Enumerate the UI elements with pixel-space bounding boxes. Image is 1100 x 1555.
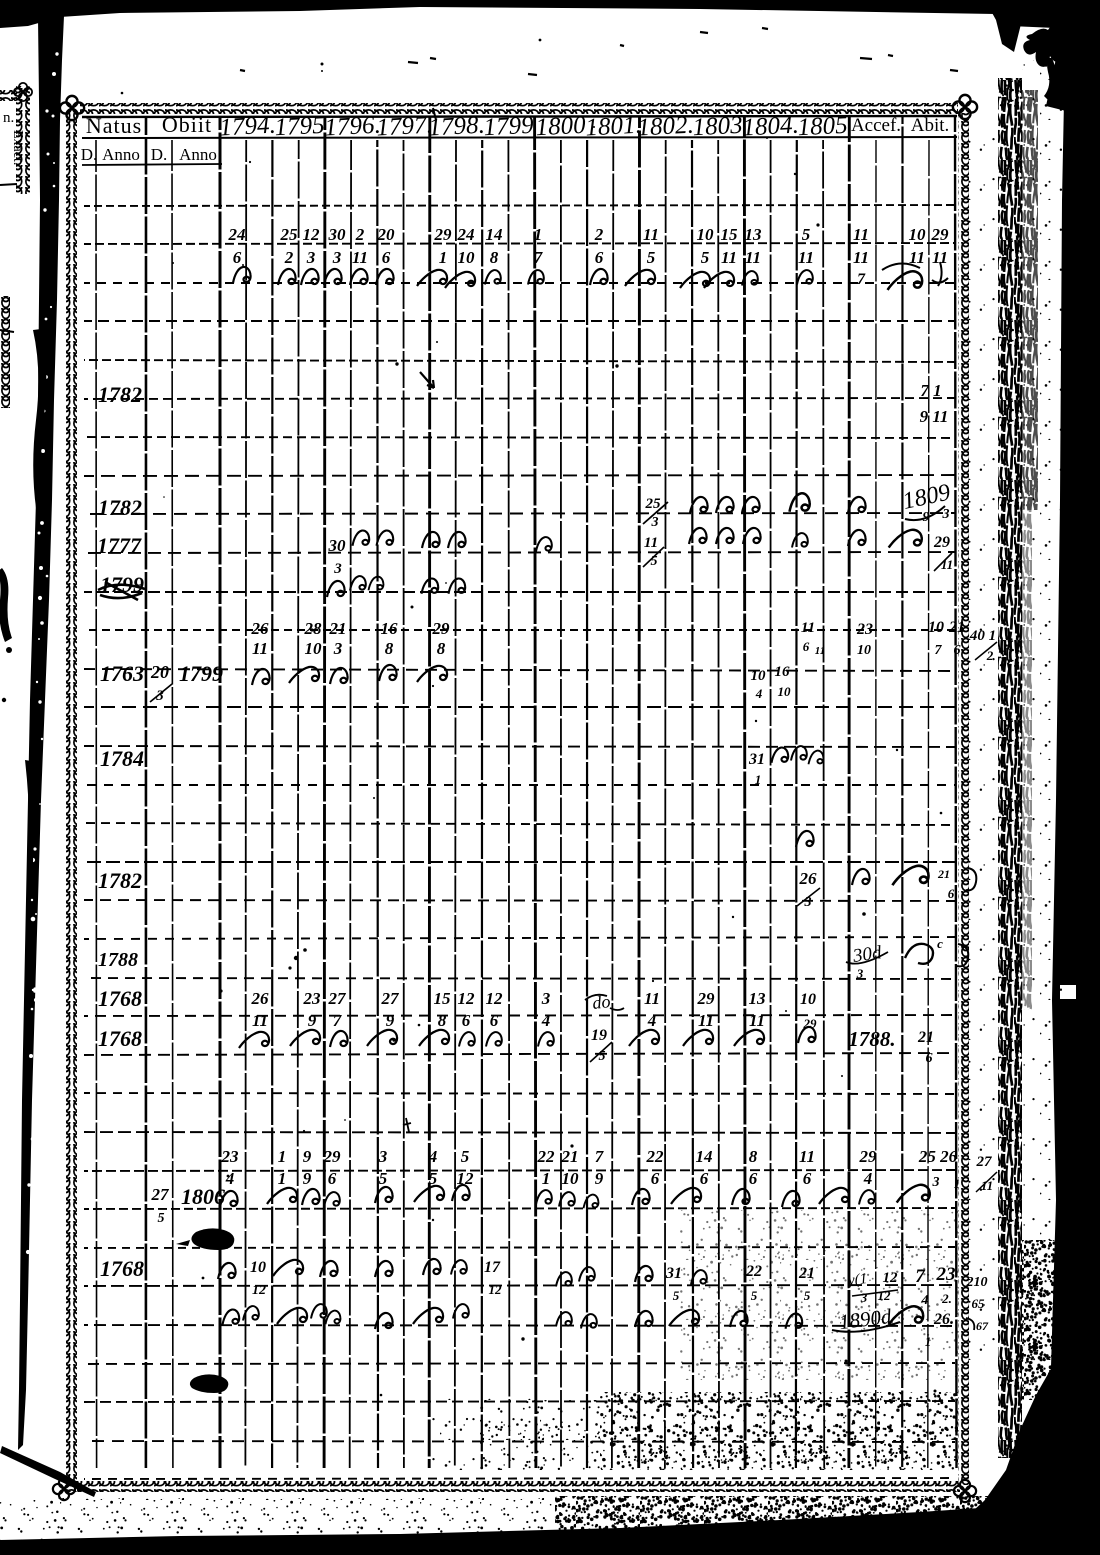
svg-text:1796.: 1796.: [324, 112, 382, 142]
svg-text:4: 4: [225, 1169, 235, 1188]
svg-text:16: 16: [381, 619, 399, 638]
svg-text:12: 12: [458, 989, 476, 1008]
svg-text:3: 3: [932, 1175, 940, 1190]
svg-text:10: 10: [909, 225, 927, 244]
svg-text:Accef.: Accef.: [851, 115, 901, 136]
svg-text:1784: 1784: [100, 746, 144, 771]
svg-text:26: 26: [251, 989, 270, 1008]
svg-text:26: 26: [799, 869, 818, 888]
svg-text:30: 30: [328, 225, 347, 244]
svg-text:1797.: 1797.: [376, 112, 434, 142]
svg-text:D.: D.: [81, 145, 98, 164]
svg-text:11: 11: [853, 248, 869, 267]
svg-text:7 1: 7 1: [920, 381, 941, 400]
svg-text:30: 30: [328, 536, 347, 555]
svg-text:22: 22: [646, 1147, 665, 1166]
svg-text:5: 5: [647, 248, 656, 267]
svg-text:11: 11: [815, 645, 825, 657]
svg-text:29: 29: [933, 534, 950, 551]
svg-text:6: 6: [700, 1169, 709, 1188]
svg-text:6: 6: [490, 1011, 499, 1030]
svg-text:10: 10: [697, 225, 715, 244]
svg-text:9: 9: [923, 510, 930, 525]
svg-text:6: 6: [803, 1169, 812, 1188]
svg-text:12: 12: [489, 1282, 503, 1297]
svg-text:11: 11: [798, 248, 814, 267]
svg-text:8: 8: [490, 248, 499, 267]
svg-text:11: 11: [643, 225, 659, 244]
svg-text:4: 4: [647, 1011, 657, 1030]
svg-text:1: 1: [278, 1147, 287, 1166]
svg-text:29: 29: [697, 989, 716, 1008]
svg-text:1: 1: [278, 1169, 287, 1188]
svg-text:9: 9: [386, 1011, 395, 1030]
svg-text:31: 31: [665, 1265, 682, 1282]
svg-text:23: 23: [303, 989, 322, 1008]
svg-text:11: 11: [853, 225, 869, 244]
svg-text:10: 10: [778, 684, 792, 699]
svg-text:3: 3: [804, 895, 812, 910]
svg-text:8: 8: [385, 639, 394, 658]
svg-text:11: 11: [749, 1011, 765, 1030]
svg-text:29: 29: [432, 619, 451, 638]
svg-text:11: 11: [745, 248, 761, 267]
svg-text:26: 26: [251, 619, 270, 638]
svg-text:1763: 1763: [100, 661, 144, 686]
svg-text:1800: 1800: [535, 112, 587, 142]
svg-text:5: 5: [379, 1169, 388, 1188]
svg-text:25: 25: [645, 496, 662, 512]
svg-text:28: 28: [304, 619, 323, 638]
svg-text:1: 1: [954, 1176, 961, 1191]
svg-text:Exact.: Exact.: [10, 130, 25, 165]
svg-text:21: 21: [937, 867, 950, 881]
svg-text:6: 6: [233, 248, 242, 267]
svg-text:9 11: 9 11: [920, 407, 949, 426]
svg-text:22: 22: [537, 1147, 556, 1166]
svg-text:Obiit: Obiit: [162, 112, 212, 137]
svg-text:5: 5: [673, 1288, 680, 1303]
svg-text:8: 8: [437, 639, 446, 658]
svg-text:31: 31: [748, 751, 765, 768]
svg-text:8: 8: [749, 1147, 758, 1166]
svg-text:1804.: 1804.: [742, 112, 800, 142]
svg-text:1799: 1799: [100, 572, 144, 597]
svg-text:Anno: Anno: [102, 145, 140, 164]
svg-text:9: 9: [595, 1169, 604, 1188]
svg-text:20: 20: [150, 662, 169, 682]
svg-text:14: 14: [486, 225, 503, 244]
svg-text:6: 6: [948, 886, 955, 901]
svg-text:1: 1: [755, 772, 762, 787]
svg-text:10: 10: [800, 991, 816, 1008]
svg-text:24: 24: [457, 225, 475, 244]
svg-text:3: 3: [378, 1147, 388, 1166]
svg-text:10: 10: [928, 619, 944, 636]
svg-text:1782: 1782: [98, 868, 142, 893]
svg-text:1: 1: [439, 248, 448, 267]
svg-text:12: 12: [252, 1283, 266, 1298]
svg-text:2: 2: [594, 225, 604, 244]
svg-text:4: 4: [863, 1169, 873, 1188]
svg-text:9: 9: [303, 1147, 312, 1166]
svg-text:5: 5: [461, 1147, 470, 1166]
svg-text:13: 13: [749, 989, 767, 1008]
svg-text:6: 6: [749, 1169, 758, 1188]
svg-text:6: 6: [462, 1011, 471, 1030]
svg-text:11: 11: [932, 248, 948, 267]
svg-text:1782: 1782: [98, 495, 142, 520]
svg-text:3: 3: [541, 989, 551, 1008]
svg-text:4: 4: [541, 1011, 551, 1030]
svg-text:5: 5: [599, 1049, 606, 1064]
svg-text:25 26: 25 26: [918, 1147, 958, 1166]
svg-text:23: 23: [221, 1147, 240, 1166]
svg-text:29: 29: [859, 1147, 878, 1166]
svg-text:23: 23: [856, 621, 873, 638]
svg-text:10: 10: [751, 668, 767, 684]
svg-text:7: 7: [857, 271, 866, 288]
svg-text:1788.: 1788.: [848, 1027, 895, 1051]
svg-text:1806: 1806: [181, 1184, 225, 1209]
svg-text:15: 15: [721, 225, 739, 244]
svg-text:4: 4: [755, 686, 763, 701]
svg-text:6: 6: [595, 248, 604, 267]
svg-text:5: 5: [802, 225, 811, 244]
svg-text:3: 3: [942, 507, 950, 522]
svg-text:1782: 1782: [98, 382, 142, 407]
svg-text:29: 29: [931, 225, 950, 244]
svg-text:21: 21: [917, 1029, 934, 1046]
svg-text:11: 11: [698, 1011, 714, 1030]
svg-text:10: 10: [857, 643, 871, 658]
svg-text:12: 12: [486, 989, 504, 1008]
svg-text:10: 10: [562, 1169, 580, 1188]
svg-text:1777: 1777: [97, 533, 142, 558]
svg-text:27: 27: [151, 1185, 171, 1204]
svg-text:11: 11: [941, 557, 953, 572]
svg-text:17: 17: [484, 1259, 501, 1276]
svg-text:29: 29: [434, 225, 453, 244]
svg-text:6: 6: [803, 639, 810, 654]
svg-text:9: 9: [308, 1011, 317, 1030]
svg-text:11: 11: [352, 248, 368, 267]
svg-text:1794.: 1794.: [219, 112, 277, 142]
svg-text:1795: 1795: [274, 112, 325, 142]
svg-text:3: 3: [333, 561, 342, 577]
svg-text:n.: n.: [3, 110, 14, 126]
svg-text:19: 19: [591, 1027, 607, 1044]
svg-text:Abit.: Abit.: [911, 115, 950, 136]
svg-text:11: 11: [644, 989, 660, 1008]
svg-text:16: 16: [775, 664, 791, 680]
svg-text:6: 6: [651, 1169, 660, 1188]
svg-text:11: 11: [644, 535, 658, 551]
svg-text:9: 9: [303, 1169, 312, 1188]
svg-text:1768: 1768: [100, 1256, 144, 1281]
svg-text:21: 21: [561, 1147, 579, 1166]
svg-text:5: 5: [651, 554, 658, 569]
svg-text:3: 3: [155, 688, 164, 704]
svg-text:10: 10: [305, 639, 323, 658]
svg-text:6: 6: [954, 643, 961, 658]
svg-text:10: 10: [250, 1259, 266, 1276]
svg-text:3: 3: [651, 515, 659, 530]
svg-text:1802.: 1802.: [637, 112, 695, 142]
svg-text:21: 21: [948, 619, 965, 636]
svg-text:3: 3: [333, 639, 343, 658]
svg-text:15: 15: [434, 989, 452, 1008]
svg-text:25: 25: [280, 225, 299, 244]
svg-text:11: 11: [252, 1011, 268, 1030]
svg-text:Anno: Anno: [179, 145, 217, 164]
svg-text:1: 1: [542, 1169, 551, 1188]
svg-text:27: 27: [381, 989, 401, 1008]
svg-text:7: 7: [935, 643, 943, 658]
svg-text:3: 3: [332, 248, 342, 267]
svg-text:1798.: 1798.: [428, 112, 486, 142]
svg-text:1768: 1768: [98, 986, 142, 1011]
svg-text:3: 3: [306, 248, 316, 267]
svg-text:11: 11: [801, 620, 815, 636]
svg-text:D.: D.: [151, 145, 168, 164]
svg-text:Natus: Natus: [86, 113, 142, 138]
svg-text:5: 5: [701, 248, 710, 267]
svg-text:27: 27: [328, 989, 348, 1008]
svg-text:1805: 1805: [797, 112, 848, 142]
svg-text:1799: 1799: [179, 661, 223, 686]
svg-text:1799: 1799: [483, 112, 535, 142]
svg-text:14: 14: [696, 1147, 713, 1166]
svg-text:1: 1: [534, 225, 543, 244]
svg-text:6: 6: [328, 1169, 337, 1188]
svg-text:21: 21: [329, 619, 347, 638]
svg-text:11: 11: [721, 248, 737, 267]
svg-text:29: 29: [323, 1147, 342, 1166]
svg-text:6: 6: [926, 1051, 933, 1066]
svg-text:12: 12: [303, 225, 321, 244]
svg-text:4: 4: [428, 1147, 438, 1166]
svg-text:13: 13: [745, 225, 763, 244]
svg-text:1803: 1803: [692, 112, 743, 142]
svg-text:3: 3: [856, 966, 864, 981]
svg-text:6: 6: [382, 248, 391, 267]
svg-text:24: 24: [228, 225, 246, 244]
svg-text:2: 2: [284, 248, 294, 267]
svg-text:1768: 1768: [98, 1026, 142, 1051]
svg-text:2: 2: [355, 225, 365, 244]
svg-text:c: c: [937, 936, 943, 951]
svg-text:8: 8: [438, 1011, 447, 1030]
svg-text:10: 10: [458, 248, 476, 267]
svg-text:1788: 1788: [98, 949, 138, 971]
svg-text:11: 11: [909, 248, 925, 267]
svg-text:5: 5: [158, 1211, 165, 1226]
svg-text:11: 11: [799, 1147, 815, 1166]
svg-text:11: 11: [252, 639, 268, 658]
svg-text:20: 20: [377, 225, 396, 244]
